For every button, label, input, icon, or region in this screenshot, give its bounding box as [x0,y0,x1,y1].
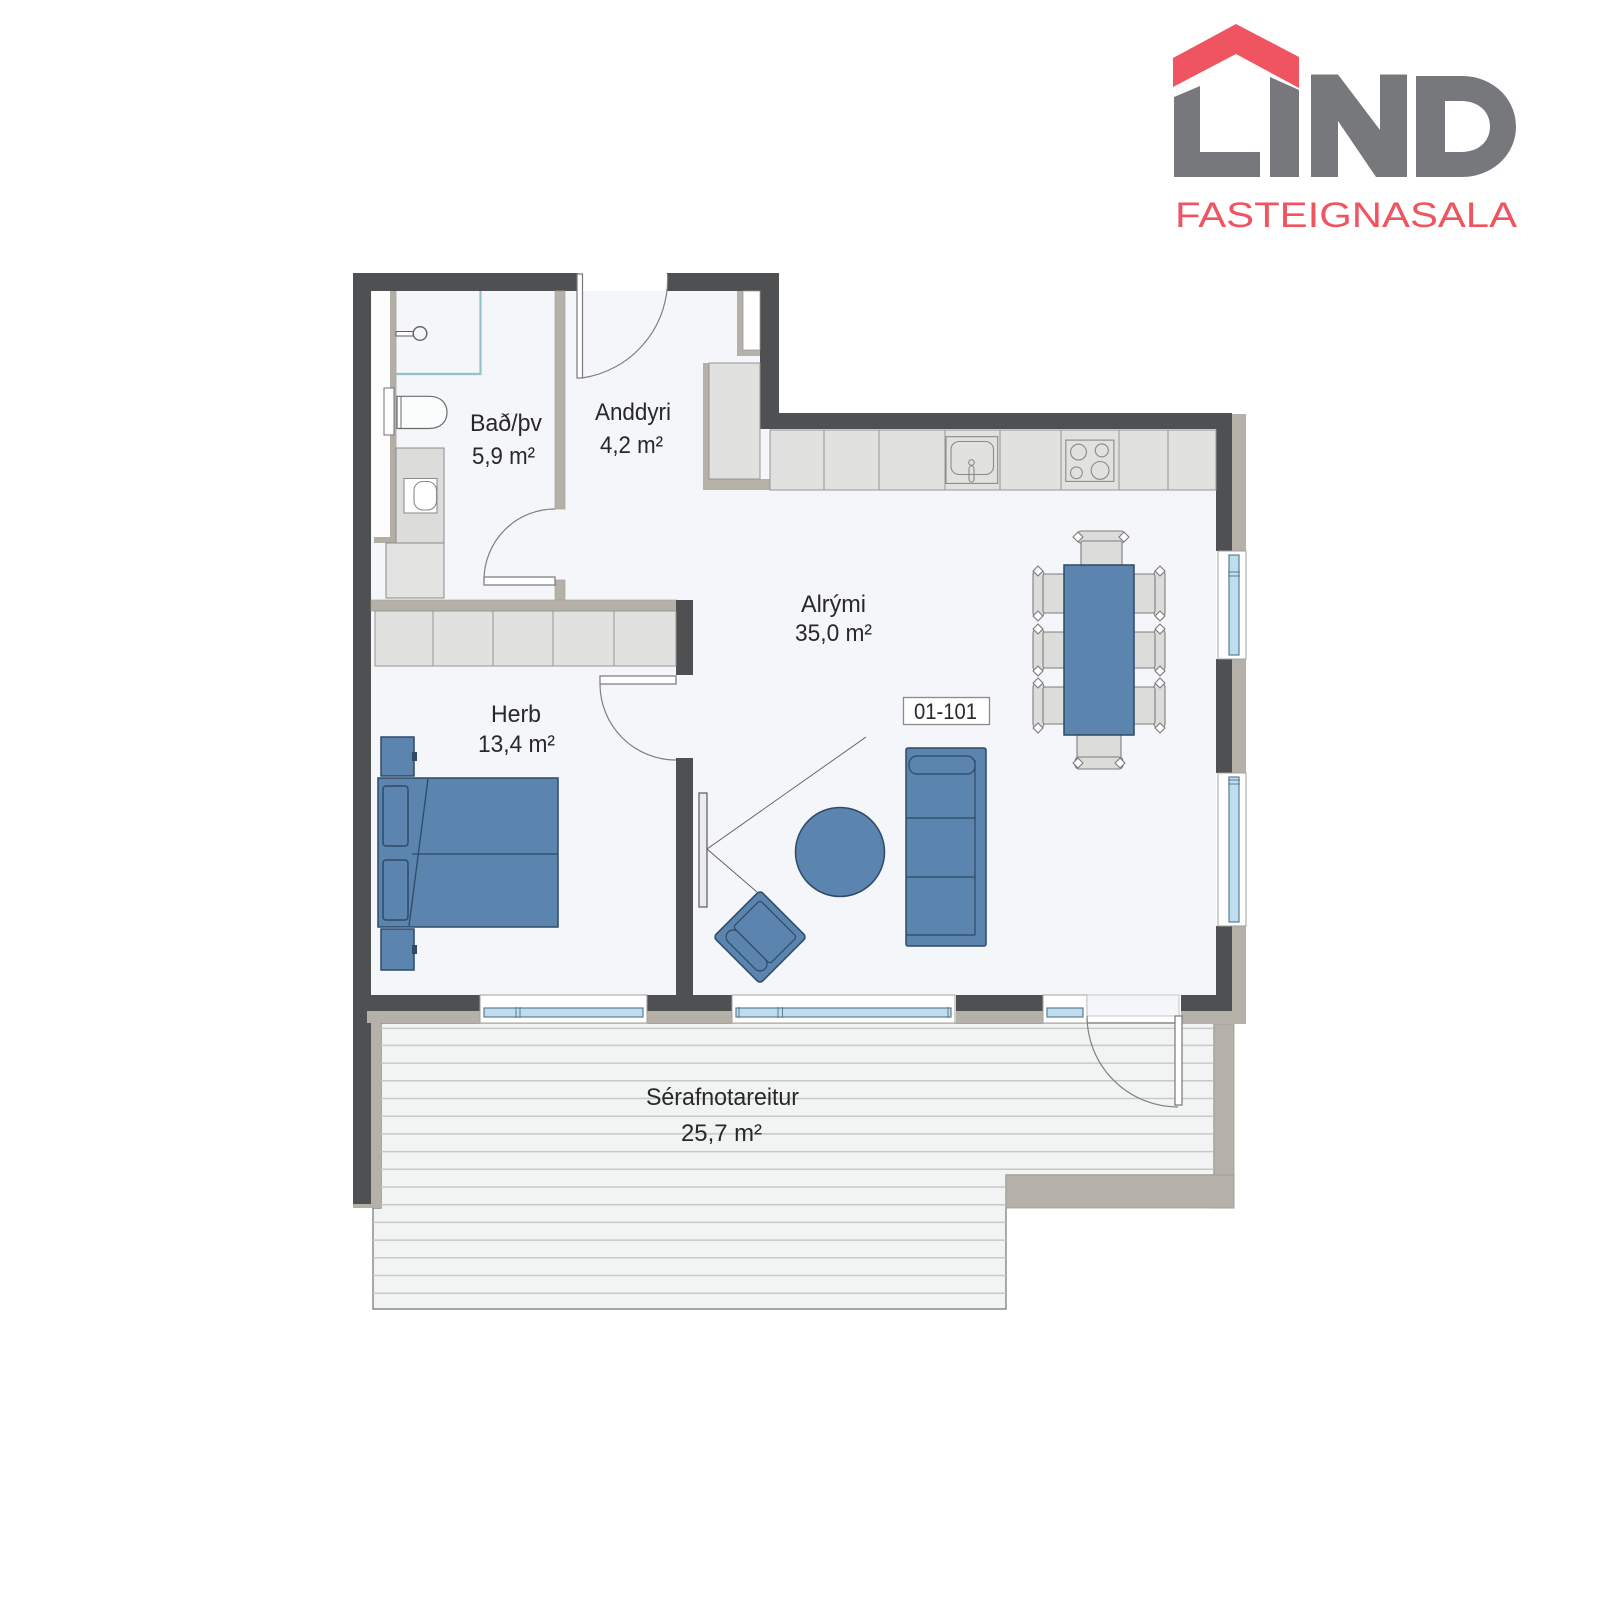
svg-text:Bað/þv: Bað/þv [470,410,542,437]
svg-text:Alrými: Alrými [801,591,866,618]
svg-text:25,7 m²: 25,7 m² [681,1120,762,1147]
svg-text:Anddyri: Anddyri [595,399,671,426]
svg-text:13,4 m²: 13,4 m² [478,731,555,758]
svg-text:35,0 m²: 35,0 m² [795,620,872,647]
svg-text:FASTEIGNASALA: FASTEIGNASALA [1175,196,1518,235]
svg-text:5,9 m²: 5,9 m² [472,443,535,470]
svg-text:Sérafnotareitur: Sérafnotareitur [646,1084,799,1111]
svg-text:01-101: 01-101 [914,699,977,724]
svg-text:4,2 m²: 4,2 m² [600,432,663,459]
svg-text:Herb: Herb [491,701,541,728]
